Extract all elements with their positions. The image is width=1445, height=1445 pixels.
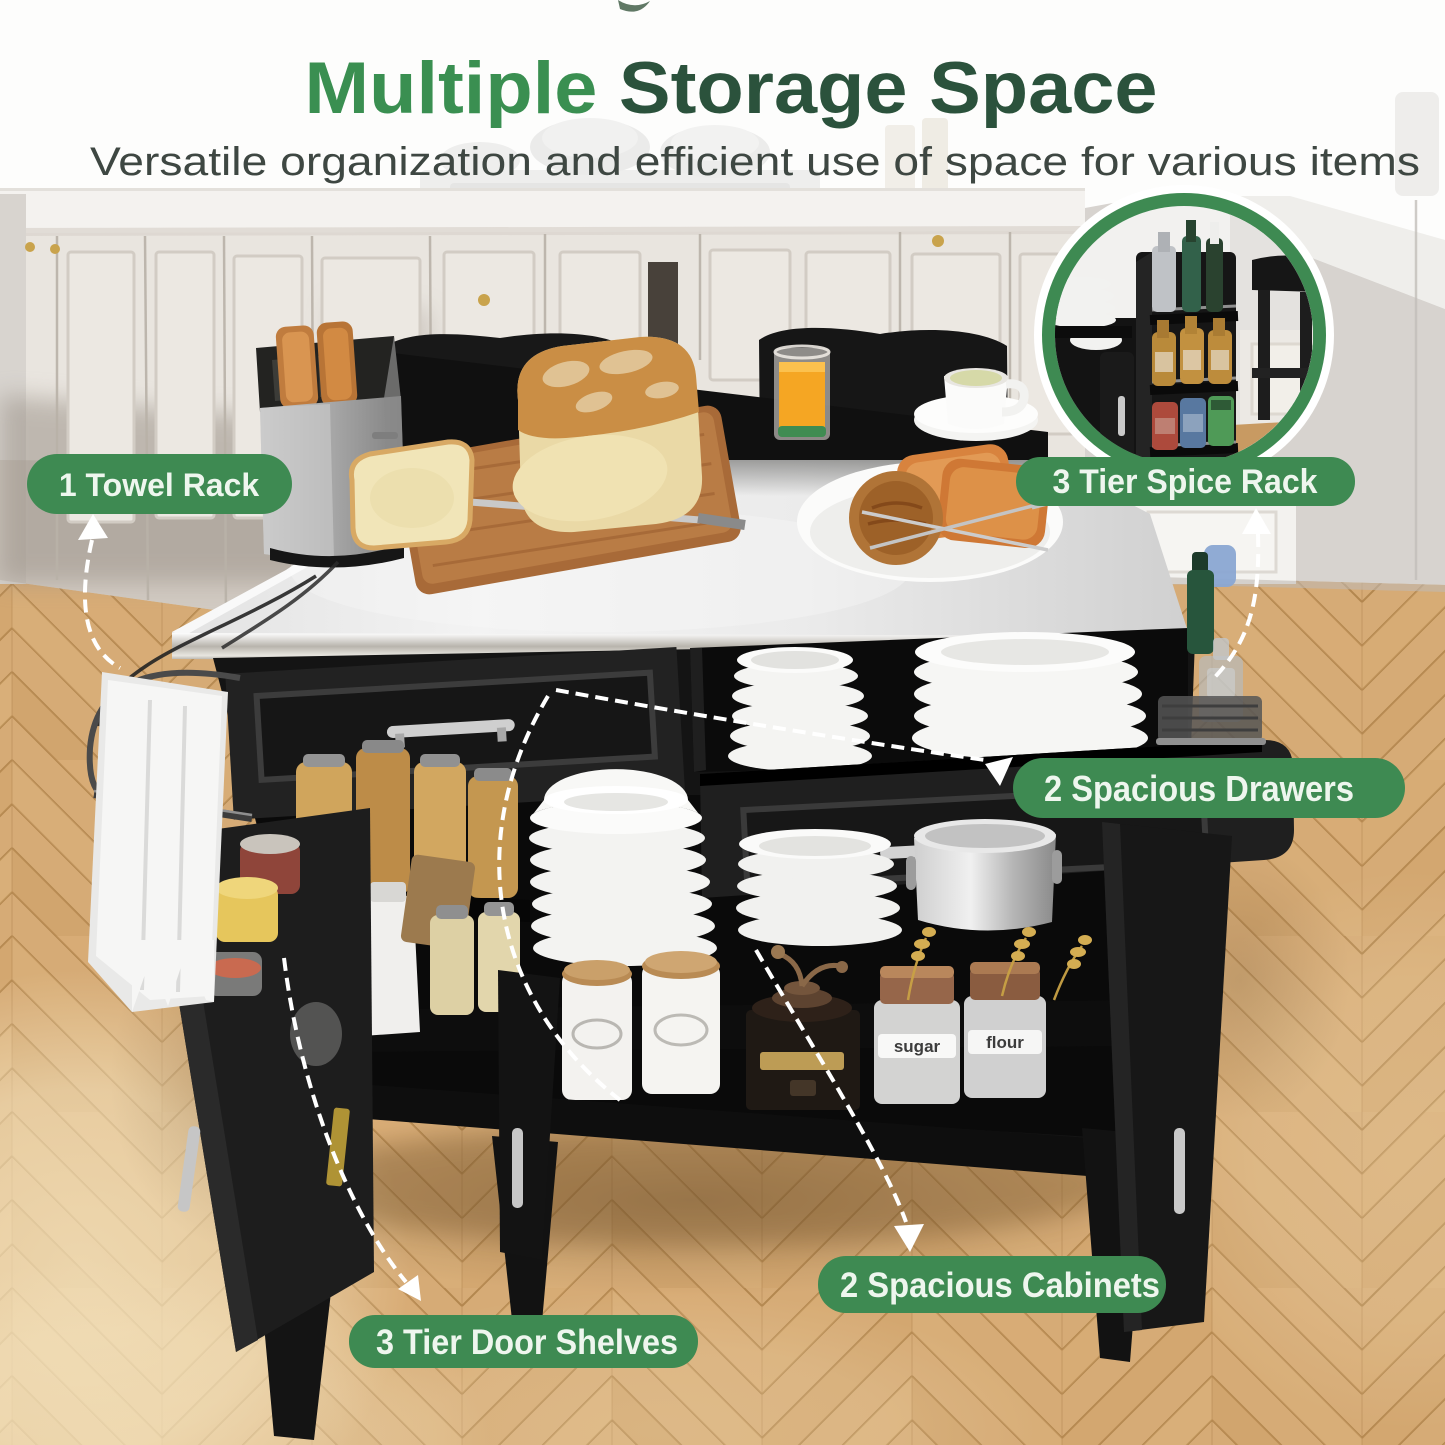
svg-text:Versatile organization and eff: Versatile organization and efficient use…	[90, 140, 1420, 184]
svg-text:3 Tier Door Shelves: 3 Tier Door Shelves	[376, 1323, 678, 1362]
svg-text:Multiple Storage Space: Multiple Storage Space	[305, 48, 1158, 129]
svg-text:1 Towel Rack: 1 Towel Rack	[59, 467, 260, 503]
svg-text:flour: flour	[986, 1033, 1024, 1052]
svg-text:2 Spacious Cabinets: 2 Spacious Cabinets	[840, 1266, 1160, 1305]
svg-text:sugar: sugar	[894, 1037, 941, 1056]
svg-text:3 Tier Spice Rack: 3 Tier Spice Rack	[1053, 463, 1318, 501]
svg-text:2 Spacious Drawers: 2 Spacious Drawers	[1044, 768, 1354, 809]
